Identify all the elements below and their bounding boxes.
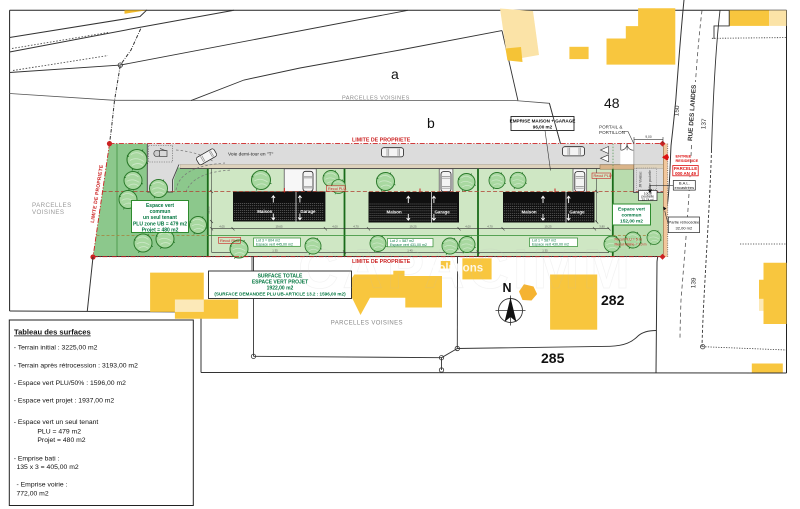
svg-text:- Espace vert un seul tenant: - Espace vert un seul tenant <box>14 419 99 426</box>
svg-text:PARCELLES VOISINES: PARCELLES VOISINES <box>331 321 403 327</box>
svg-text:a: a <box>391 66 399 82</box>
svg-text:JR Vivabac: JR Vivabac <box>639 171 643 187</box>
svg-text:4,05: 4,05 <box>219 225 225 229</box>
svg-text:- Terrain initial : 3225,00 m2: - Terrain initial : 3225,00 m2 <box>14 345 98 352</box>
svg-text:Garage: Garage <box>300 209 316 214</box>
svg-text:Recul PLU: Recul PLU <box>594 174 612 178</box>
svg-text:LIMITE DE PROPRIETE: LIMITE DE PROPRIETE <box>352 138 411 144</box>
svg-text:22,00: 22,00 <box>207 206 211 213</box>
svg-text:- Emprise voirie :: - Emprise voirie : <box>17 481 68 488</box>
svg-text:150: 150 <box>673 105 681 117</box>
svg-text:9,00: 9,00 <box>645 135 651 139</box>
svg-text:4,00: 4,00 <box>332 225 338 229</box>
svg-text:Recul PLU: Recul PLU <box>328 187 346 191</box>
svg-text:19,65: 19,65 <box>276 225 283 229</box>
svg-text:4,00: 4,00 <box>465 225 471 229</box>
svg-text:19,25: 19,25 <box>545 225 552 229</box>
svg-text:Partie rétrocédée: Partie rétrocédée <box>669 220 700 225</box>
svg-text:96,00 m2: 96,00 m2 <box>533 125 553 130</box>
svg-text:PARCELLES VOISINES: PARCELLES VOISINES <box>342 95 410 101</box>
svg-text:Maison: Maison <box>257 209 272 214</box>
svg-text:285: 285 <box>541 350 565 366</box>
svg-text:Projet = 480 m2: Projet = 480 m2 <box>142 227 179 233</box>
svg-text:encastrées: encastrées <box>675 185 695 190</box>
svg-text:1 35: 1 35 <box>272 248 278 252</box>
svg-text:Garage: Garage <box>435 210 451 215</box>
svg-text:4,70: 4,70 <box>487 225 493 229</box>
svg-text:Garage: Garage <box>569 210 585 215</box>
svg-text:PORTILLON: PORTILLON <box>599 130 625 135</box>
svg-text:139: 139 <box>690 277 698 288</box>
svg-text:EMPRISE MAISON + GARAGE: EMPRISE MAISON + GARAGE <box>510 119 576 124</box>
svg-text:772,00 m2: 772,00 m2 <box>17 490 49 497</box>
svg-text:RESIDENCE: RESIDENCE <box>676 158 699 163</box>
svg-text:Maison: Maison <box>387 210 402 215</box>
svg-text:- Espace vert PLU/50% : 1596,0: - Espace vert PLU/50% : 1596,00 m2 <box>14 380 126 387</box>
svg-text:Espace vert: Espace vert <box>618 207 645 213</box>
svg-text:Voie demi-tour en "T": Voie demi-tour en "T" <box>228 152 274 158</box>
svg-text:VOISINES: VOISINES <box>32 209 64 216</box>
svg-text:- Terrain après rétrocession :: - Terrain après rétrocession : 3193,00 m… <box>14 363 138 370</box>
svg-text:b: b <box>427 115 435 131</box>
svg-text:Tableau des surfaces: Tableau des surfaces <box>14 328 91 337</box>
svg-text:solutions: solutions <box>432 263 483 275</box>
svg-text:Maison: Maison <box>521 210 536 215</box>
svg-text:3,80: 3,80 <box>599 225 605 229</box>
svg-text:15,74 m²: 15,74 m² <box>642 197 654 201</box>
svg-text:PORTAIL &: PORTAIL & <box>599 125 622 130</box>
svg-text:135 x 3 = 405,00 m2: 135 x 3 = 405,00 m2 <box>17 464 79 471</box>
svg-text:32,00 m2: 32,00 m2 <box>676 226 693 231</box>
svg-text:137: 137 <box>700 118 708 130</box>
svg-text:152,00 m2: 152,00 m2 <box>620 219 643 225</box>
svg-text:PLU = 479 m2: PLU = 479 m2 <box>37 428 81 435</box>
svg-text:- Emprise bati :: - Emprise bati : <box>14 455 60 462</box>
svg-text:48: 48 <box>604 95 620 111</box>
svg-text:un seul tenant: un seul tenant <box>143 215 177 221</box>
svg-text:Espace vert 445,00 m2: Espace vert 445,00 m2 <box>256 242 293 246</box>
svg-text:Projet = 480 m2: Projet = 480 m2 <box>37 437 85 444</box>
svg-text:4,70: 4,70 <box>353 225 359 229</box>
svg-text:- Espace vert projet : 1937,00: - Espace vert projet : 1937,00 m2 <box>14 398 115 405</box>
svg-text:Espace vert: Espace vert <box>146 203 174 209</box>
svg-text:19,25: 19,25 <box>410 225 417 229</box>
svg-text:Recul PLU: Recul PLU <box>220 238 239 243</box>
svg-text:commun: commun <box>622 214 642 219</box>
svg-text:commun: commun <box>150 209 171 215</box>
svg-text:000 AN 49: 000 AN 49 <box>675 171 696 176</box>
